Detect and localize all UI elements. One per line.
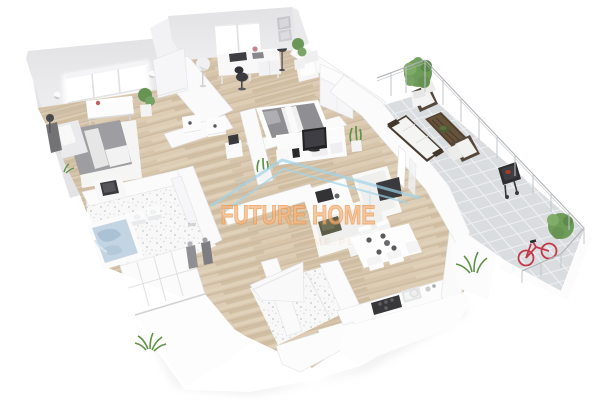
svg-text:FUTURE HOME: FUTURE HOME bbox=[221, 200, 376, 230]
svg-text:FUTUREHOME.PL: FUTUREHOME.PL bbox=[240, 237, 356, 247]
